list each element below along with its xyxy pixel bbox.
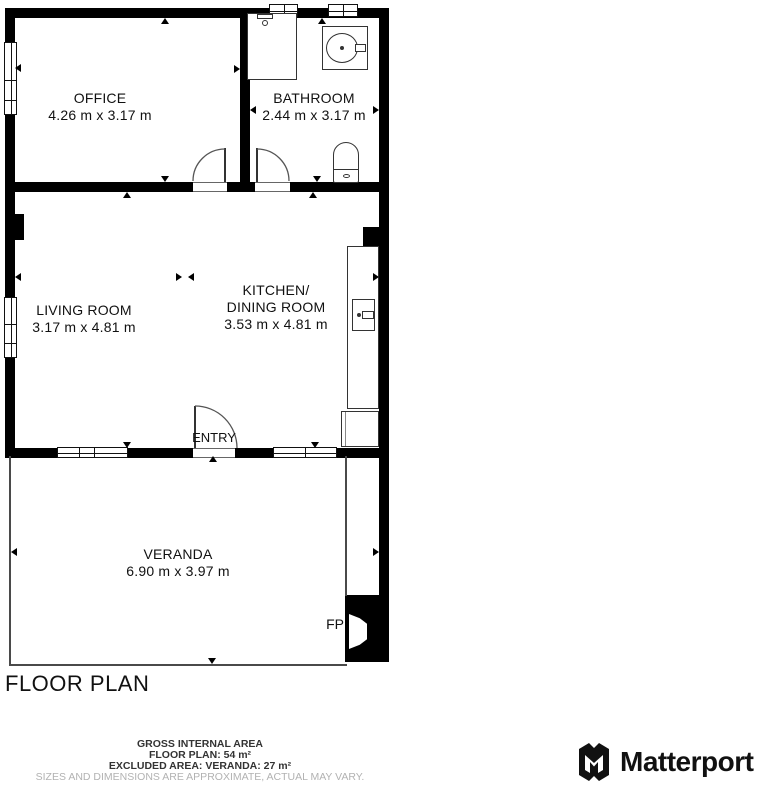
room-dims: 3.53 m x 4.81 m [196,316,356,333]
bathroom-sink-drain [340,46,344,50]
fireplace-label: FP [322,616,344,632]
kitchen-appliance-line [345,412,346,446]
room-label-veranda: VERANDA 6.90 m x 3.97 m [98,546,258,580]
veranda-outline-bottom [9,664,347,666]
room-label-bathroom: BATHROOM 2.44 m x 3.17 m [244,90,384,124]
footer-area-summary: GROSS INTERNAL AREA FLOOR PLAN: 54 m² EX… [0,739,400,783]
door-opening-office [193,182,227,192]
toilet-seat-line [334,169,358,170]
matterport-logo: Matterport [577,742,753,782]
room-label-living-room: LIVING ROOM 3.17 m x 4.81 m [14,302,154,336]
room-name-line2: DINING ROOM [196,299,356,316]
wall-pier-left [5,214,24,240]
dimension-arrow [208,658,216,664]
window-bathroom-top-right [328,4,358,17]
dimension-arrow [188,273,194,281]
dimension-arrow [161,176,169,182]
wall-bottom-seg3 [235,448,273,458]
door-leaf-bathroom [256,148,258,182]
floor-plan-title: FLOOR PLAN [5,671,149,697]
dimension-arrow [15,273,21,281]
wall-left-living-upper [5,192,15,297]
wall-bottom-seg1 [5,448,57,458]
door-opening-bathroom [255,182,290,192]
room-dims: 6.90 m x 3.97 m [98,563,258,580]
dimension-arrow [313,176,321,182]
shower-head-icon [257,14,273,19]
entry-label: ENTRY [191,430,237,445]
bathroom-sink-tap [355,44,366,52]
wall-mid-seg3 [290,182,389,192]
window-kitchen-veranda [273,447,337,458]
room-dims: 3.17 m x 4.81 m [14,319,154,336]
floor-plan-canvas: OFFICE 4.26 m x 3.17 m BATHROOM 2.44 m x… [0,0,770,792]
window-living-veranda [57,447,128,458]
disclaimer-text: SIZES AND DIMENSIONS ARE APPROXIMATE, AC… [0,772,400,783]
kitchen-sink-drain [357,313,361,317]
dimension-arrow [161,18,169,24]
dimension-arrow [11,548,17,556]
room-name: BATHROOM [244,90,384,107]
dimension-arrow [309,192,317,198]
wall-mid-seg2 [227,182,255,192]
room-name: VERANDA [98,546,258,563]
shower-symbol [247,13,297,80]
wall-mid-seg1 [5,182,193,192]
room-name: KITCHEN/ [196,282,356,299]
kitchen-appliance [341,411,379,447]
wall-pier-right [363,227,389,248]
room-dims: 2.44 m x 3.17 m [244,107,384,124]
veranda-outline-right [345,456,347,596]
dimension-arrow [123,192,131,198]
veranda-outline-left [9,456,11,666]
matterport-m-icon [577,742,611,782]
dimension-arrow [311,442,319,448]
window-office-left [4,42,17,115]
matterport-wordmark: Matterport [620,746,753,778]
shower-knob-icon [262,20,268,26]
dimension-arrow [123,442,131,448]
room-name: OFFICE [20,90,180,107]
wall-bottom-seg2 [128,448,193,458]
door-leaf-office [224,148,226,182]
kitchen-sink-tap [362,311,374,319]
dimension-arrow [234,65,240,73]
toilet-button [343,174,350,178]
wall-left-office-lower [5,115,15,192]
wall-left-living-lower [5,358,15,456]
room-label-kitchen-dining: KITCHEN/ DINING ROOM 3.53 m x 4.81 m [196,282,356,333]
room-label-office: OFFICE 4.26 m x 3.17 m [20,90,180,124]
dimension-arrow [15,64,21,72]
dimension-arrow [373,273,379,281]
room-dims: 4.26 m x 3.17 m [20,107,180,124]
dimension-arrow [209,456,217,462]
dimension-arrow [373,548,379,556]
room-name: LIVING ROOM [14,302,154,319]
dimension-arrow [176,273,182,281]
wall-left-office-upper [5,8,15,42]
dimension-arrow [318,18,326,24]
